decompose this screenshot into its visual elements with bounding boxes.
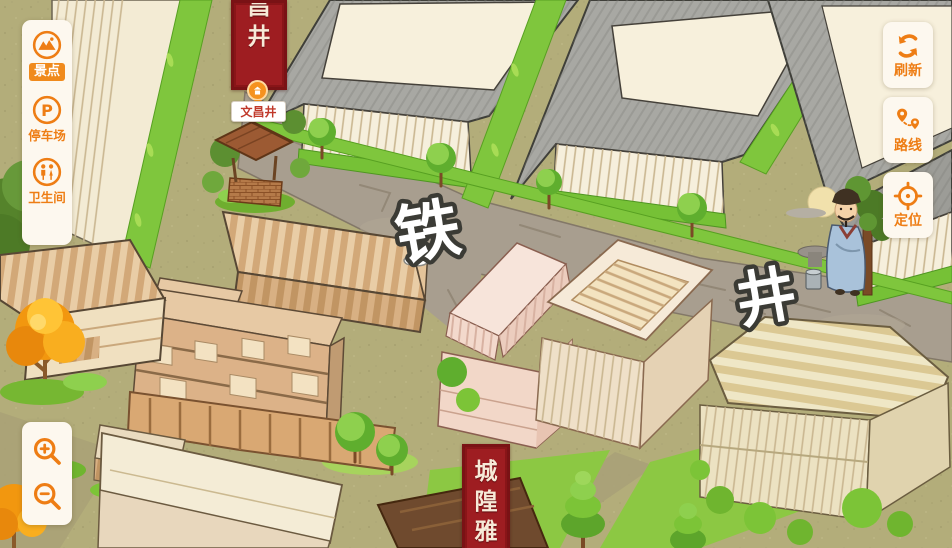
route-button[interactable]: 路线 (883, 97, 933, 163)
sidebar-item-label: 景点 (29, 63, 65, 81)
route-icon (893, 106, 923, 136)
category-panel: 景点 P 停车场 卫生间 (22, 20, 72, 245)
refresh-button[interactable]: 刷新 (883, 22, 933, 88)
well-poi-label[interactable]: 文昌井 (231, 101, 286, 122)
poi-banner-top: 昌 井 (231, 0, 287, 90)
road-label-jing: 井 (731, 258, 802, 337)
sidebar-item-label: 卫生间 (28, 190, 66, 205)
tool-label: 定位 (894, 213, 922, 230)
sidebar-item-label: 停车场 (28, 128, 66, 143)
parking-icon: P (32, 95, 62, 125)
zoom-out-button[interactable] (31, 480, 63, 512)
scenic-spot-icon (32, 30, 62, 60)
tool-stack: 刷新 路线 定位 (883, 22, 933, 238)
scenic-map-app: 铁 井 昌 井 文昌井 城 隍 雅 景点 P (0, 0, 952, 548)
banner-char: 城 (475, 457, 498, 487)
zoom-controls (22, 422, 72, 525)
banner-char: 隍 (475, 487, 498, 517)
zoom-out-icon (31, 480, 63, 512)
restroom-icon (32, 157, 62, 187)
tool-label: 路线 (894, 138, 922, 155)
locate-icon (893, 181, 923, 211)
road-label-tie: 铁 (390, 191, 466, 275)
banner-char: 昌 (248, 0, 271, 22)
refresh-icon (893, 31, 923, 61)
svg-text:P: P (41, 100, 53, 119)
banner-char: 井 (248, 22, 271, 52)
poi-banner-bottom: 城 隍 雅 (462, 444, 510, 548)
well-marker-icon (252, 85, 263, 96)
tool-label: 刷新 (894, 63, 922, 80)
zoom-in-button[interactable] (31, 435, 63, 467)
sidebar-item-scenic[interactable]: 景点 (29, 30, 65, 81)
sidebar-item-parking[interactable]: P 停车场 (28, 95, 66, 143)
zoom-in-icon (31, 435, 63, 467)
locate-button[interactable]: 定位 (883, 172, 933, 238)
well-poi-marker[interactable] (247, 80, 268, 101)
sidebar-item-toilet[interactable]: 卫生间 (28, 157, 66, 205)
banner-char: 雅 (475, 517, 498, 547)
